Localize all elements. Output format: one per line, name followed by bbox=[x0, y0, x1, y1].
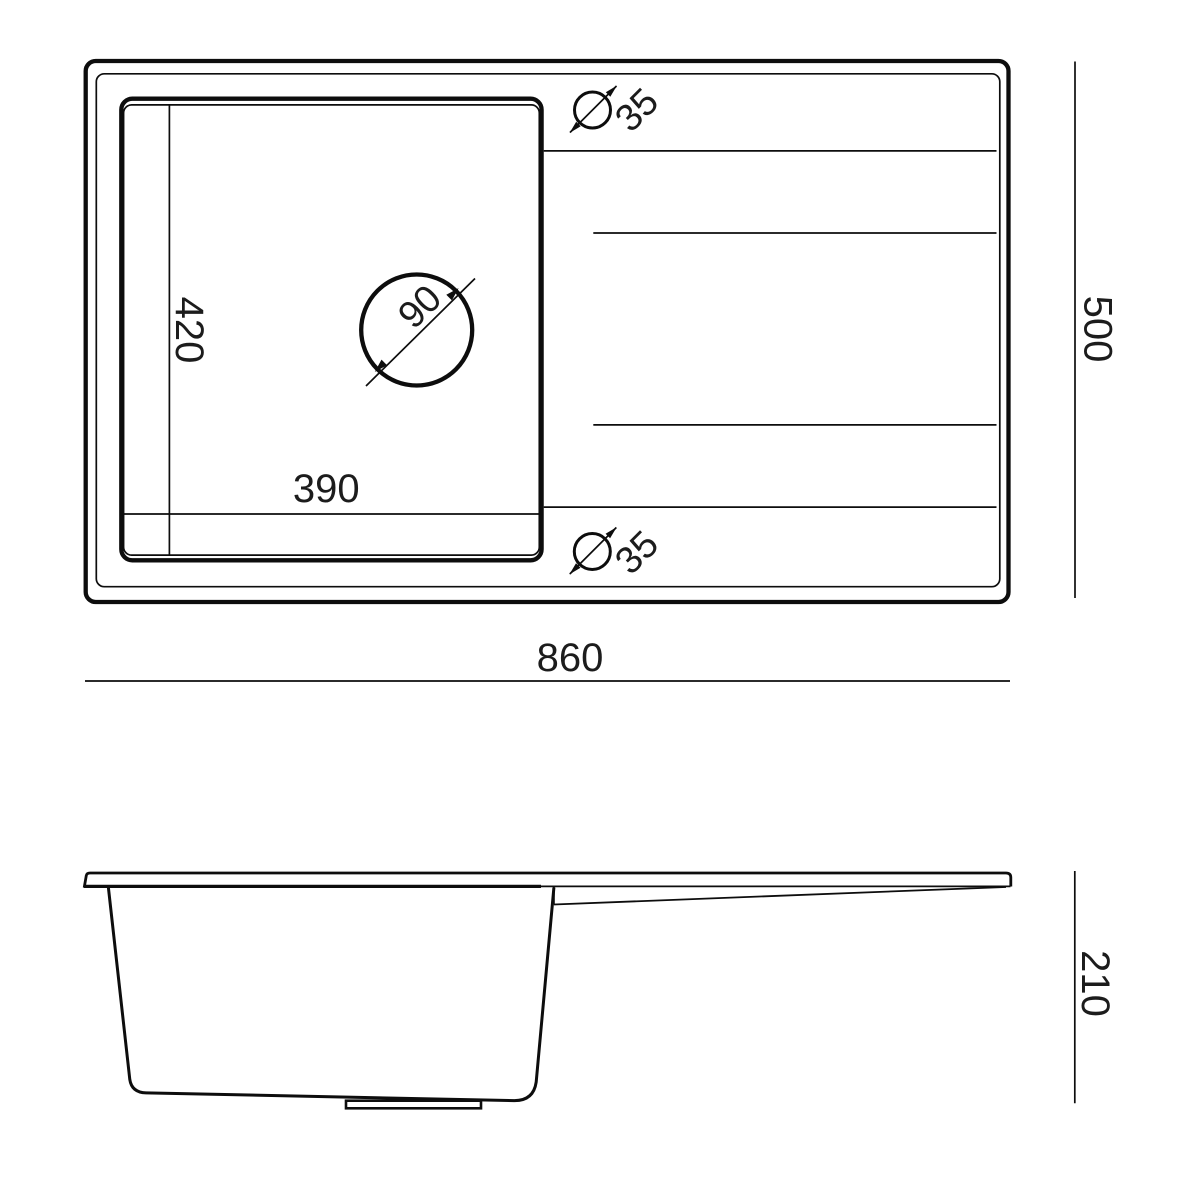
svg-text:35: 35 bbox=[607, 81, 667, 141]
svg-text:390: 390 bbox=[293, 467, 360, 511]
svg-text:210: 210 bbox=[1073, 950, 1117, 1017]
svg-text:420: 420 bbox=[167, 297, 211, 364]
svg-text:35: 35 bbox=[607, 523, 667, 583]
svg-text:500: 500 bbox=[1076, 296, 1120, 363]
svg-text:90: 90 bbox=[390, 277, 450, 337]
svg-text:860: 860 bbox=[537, 636, 604, 680]
